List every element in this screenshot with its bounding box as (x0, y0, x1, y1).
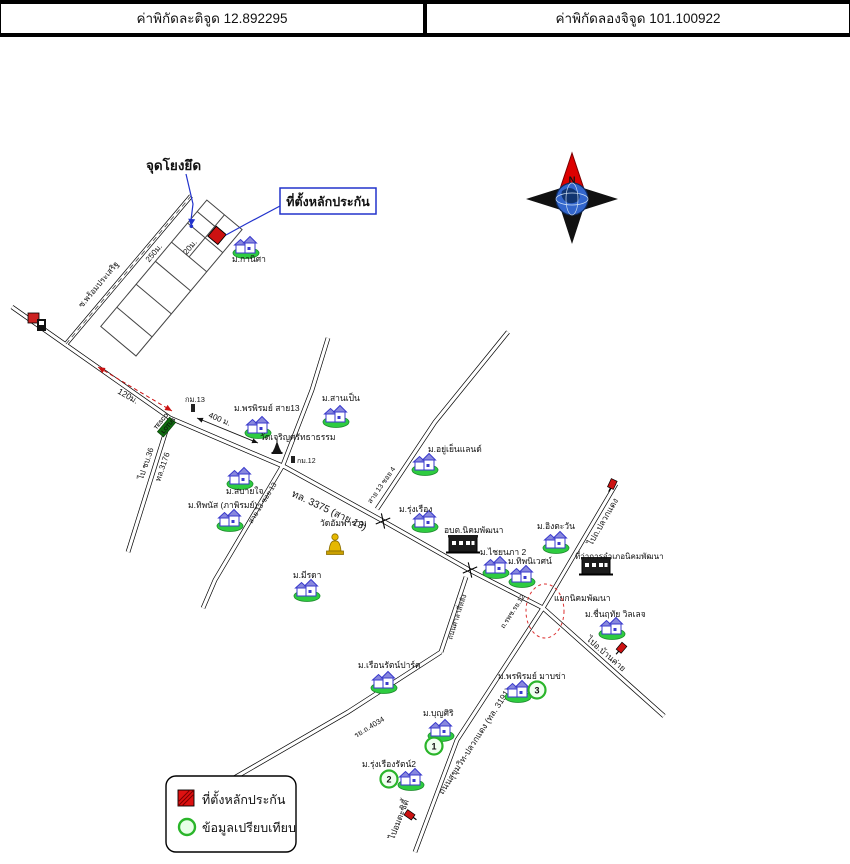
tesco-lotus-sign: TESCO LOTUS (153, 411, 178, 437)
legend: ที่ตั้งหลักประกัน ข้อมูลเปรียบเทียบ (166, 776, 296, 852)
comparison-number-3: 3 (534, 686, 539, 696)
village-icon (323, 406, 349, 428)
place-label-sabaijai: ม.สบายใจ (226, 486, 263, 496)
place-label-chuen: ม.ชื่นฤทัย วิลเลจ (585, 608, 646, 619)
place-label-wat-ampharam: วัดอัมพาราม (320, 518, 366, 528)
village-icon (599, 618, 625, 640)
village-icon (217, 510, 243, 532)
village-icon (543, 532, 569, 554)
road-label-hw3191: ถนนสุขุมวิท-ปลวกแดง (ทล. 3191) (436, 686, 513, 797)
place-label-obt: อบต.นิคมพัฒนา (444, 525, 503, 535)
comparison-number-1: 1 (431, 742, 436, 752)
junction-label: แยกนิคมพัฒนา (554, 593, 611, 603)
place-label-sanpen: ม.สานเป็น (322, 392, 360, 403)
place-label-yuyen: ม.อยู่เย็นแลนด์ (428, 443, 482, 455)
village-icon (398, 769, 424, 791)
government-building-icon (446, 535, 480, 553)
place-label-boonsiri: ม.บุญศิริ (423, 708, 454, 719)
village-icon (509, 566, 535, 588)
survey-map-page: ค่าพิกัดละติจูด 12.892295 ค่าพิกัดลองจิจ… (0, 0, 850, 864)
village-icon (412, 454, 438, 476)
place-label-amphoe: ที่ว่าการอำเภอนิคมพัฒนา (575, 550, 664, 561)
arrow-icon (252, 438, 259, 445)
place-label-pornpirom-mabkha: ม.พรพิรมย์ มาบข่า (498, 671, 566, 681)
legend-comparison-label: ข้อมูลเปรียบเทียบ (202, 821, 296, 836)
km12-label: กม.12 (297, 458, 316, 465)
place-label-tipanat: ม.ทิพนัส (ภาพิรมย์) (188, 500, 257, 510)
village-icon (294, 580, 320, 602)
km12-post-icon (291, 456, 295, 463)
anchor-label: จุดโยงยึด (146, 156, 201, 174)
village-icon (505, 681, 531, 703)
place-label-ingtawan: ม.อิงตะวัน (537, 521, 575, 531)
compass-rose: N S W E (526, 153, 618, 244)
collateral-callout-label: ที่ตั้งหลักประกัน (286, 192, 370, 209)
place-label-pornpirom13: ม.พรพิรมย์ สาย13 (234, 403, 300, 413)
compass-s: S (569, 220, 575, 231)
gas-station-icon (28, 313, 46, 331)
distance-20m: 20ม. (181, 238, 198, 256)
compass-e: E (594, 195, 600, 205)
place-label-kanisa: ม.กานิศา (232, 254, 266, 264)
village-icon (371, 672, 397, 694)
comparison-number-2: 2 (386, 775, 391, 785)
measures: 120ม. 400 ม. กม.13 กม.12 TESCO LOTUS (28, 313, 627, 822)
place-label-tipniwet: ม.ทิพนิเวศน์ (508, 556, 552, 566)
place-label-meerada: ม.มีรดา (293, 570, 321, 580)
collateral-leader-line (226, 206, 280, 235)
village-icon (483, 557, 509, 579)
km13-label: กม.13 (185, 395, 205, 404)
compass-w: W (543, 195, 552, 205)
land-plots: ซ.พร้อมประเสริฐ 250ม. 20ม. (75, 179, 242, 356)
distance-400m: 400 ม. (207, 411, 232, 428)
place-label-wat-charoen: วัดเจริญศรัทธาธรรม (260, 432, 335, 442)
site-map: ซ.พร้อมประเสริฐ 250ม. 20ม. จุดโยงยึด ที่… (0, 0, 850, 864)
km13-post-icon (191, 404, 195, 412)
legend-comparison-icon (179, 819, 195, 835)
place-label-rueanrat: ม.เรือนรัตน์ปาร์ค (358, 660, 421, 670)
place-label-rungrueang: ม.รุ่งเรือง (399, 504, 432, 515)
buddha-statue-icon (327, 534, 344, 555)
legend-collateral-label: ที่ตั้งหลักประกัน (202, 790, 286, 807)
road-label-rpch12: ถ.รพช.รย.12 (500, 594, 527, 630)
place-label-rungrueangrat2: ม.รุ่งเรืองรัตน์2 (362, 759, 416, 770)
annotations: จุดโยงยึด ที่ตั้งหลักประกัน (146, 156, 376, 235)
road-label-to-amata: ไปอมตะซิตี้ (385, 797, 411, 842)
anchor-arrow-icon (188, 219, 196, 227)
distance-120m: 120ม. (116, 386, 140, 406)
road-label-ry4034: รย.ถ.4034 (352, 715, 386, 740)
arrow-icon (196, 416, 203, 423)
